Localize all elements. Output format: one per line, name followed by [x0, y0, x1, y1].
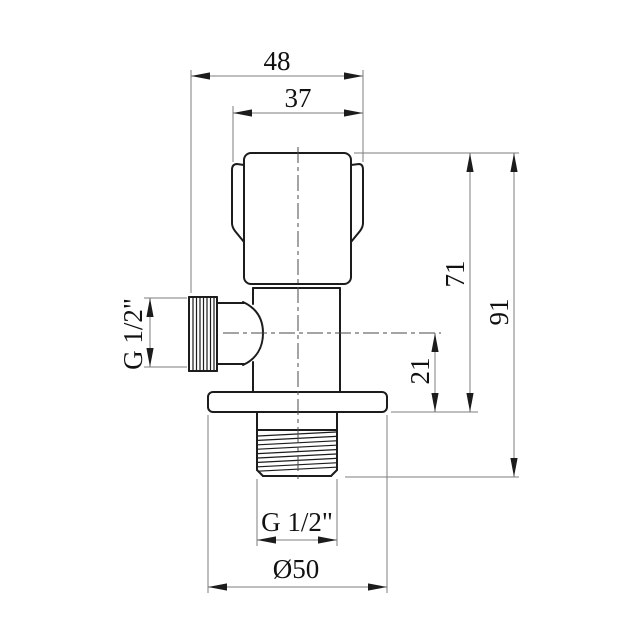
bottom-spigot [257, 412, 337, 476]
dim-91-label: 91 [484, 299, 514, 326]
dim-71-label: 71 [440, 261, 470, 288]
side-outlet-threads [193, 298, 214, 370]
bottom-threads [258, 432, 336, 471]
technical-drawing-svg: 48 37 71 91 21 G 1/2" G 1/2" Ø50 [0, 0, 630, 630]
drawing-page: 48 37 71 91 21 G 1/2" G 1/2" Ø50 [0, 0, 630, 630]
handle-right-wing [351, 164, 363, 242]
dimension-labels: 48 37 71 91 21 G 1/2" G 1/2" Ø50 [118, 46, 514, 584]
dim-bottom-thread-label: G 1/2" [261, 507, 333, 537]
side-outlet [189, 297, 263, 371]
dim-side-thread-label: G 1/2" [118, 298, 148, 370]
handle-left-wing [232, 164, 244, 242]
dim-48-label: 48 [264, 46, 291, 76]
dim-dia50-label: Ø50 [273, 554, 320, 584]
valve-part [189, 153, 387, 476]
dim-37-label: 37 [285, 83, 312, 113]
dim-21-label: 21 [405, 358, 435, 385]
valve-body [253, 288, 340, 392]
